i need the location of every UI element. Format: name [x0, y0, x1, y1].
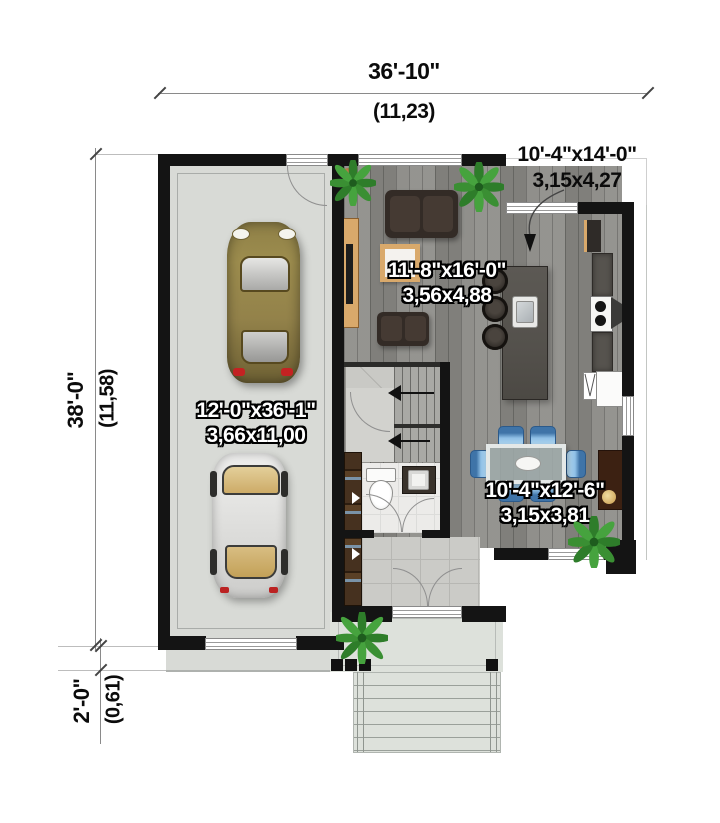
dim-top-imperial: 36'-10" — [254, 58, 554, 85]
car-wheel — [210, 471, 217, 497]
garage-front-door — [286, 154, 328, 166]
plant-icon — [330, 160, 376, 206]
front-steps — [353, 672, 501, 753]
extension-line — [95, 154, 158, 155]
car-taillight — [233, 368, 245, 376]
dining-chair — [566, 450, 586, 478]
stove-burner — [595, 315, 606, 326]
entry-threshold — [392, 606, 462, 618]
car-wheel — [210, 549, 217, 575]
car-rear-window — [241, 330, 289, 364]
bar-stool — [482, 324, 508, 350]
sofa-bottom-cushion — [381, 316, 402, 341]
car-taillight — [281, 368, 293, 376]
living-size-metric: 3,56x4,88 — [337, 283, 557, 308]
car-wheel — [281, 471, 288, 497]
sofa-bottom-cushion — [405, 316, 426, 341]
stove-burner — [595, 301, 606, 312]
car-headlight — [278, 228, 296, 240]
dining-side-window — [622, 396, 634, 436]
sofa-top-cushion — [390, 196, 420, 232]
dining-size-metric: 3,15x3,81 — [435, 503, 655, 528]
car-gold — [227, 222, 300, 383]
car-wheel — [281, 549, 288, 575]
wall-garage-bottom-left — [158, 636, 206, 650]
car-windshield — [240, 256, 290, 292]
porch-post — [486, 659, 498, 671]
step-rail — [496, 672, 497, 752]
dim-left-metric: (11,58) — [97, 339, 120, 459]
dining-size-imperial: 10'-4"x12'-6" — [435, 478, 655, 503]
step-rail — [363, 672, 364, 752]
wall-foyer-stub-right — [462, 606, 506, 622]
driveway — [166, 650, 336, 672]
garage-size-metric: 3,66x11,00 — [146, 423, 366, 448]
dim-left-imperial: 38'-0" — [63, 340, 89, 460]
plant-icon — [454, 162, 504, 212]
stair-rail — [344, 362, 446, 367]
understair-closet — [346, 364, 394, 388]
bifold-door-mark — [352, 492, 360, 504]
kitchen-counter — [592, 332, 613, 372]
plant-icon — [336, 612, 388, 664]
car-headlight — [232, 228, 250, 240]
kitchen-counter — [592, 253, 613, 297]
stair-landing-line — [394, 424, 440, 428]
dim-porch-imperial: 2'-0" — [69, 641, 95, 761]
sofa-top-cushion — [423, 196, 453, 232]
living-room-label: 11'-8"x16'-0" 3,56x4,88 — [337, 258, 557, 308]
step-rail — [357, 672, 358, 752]
serving-plate — [515, 456, 541, 471]
dim-top-metric: (11,23) — [254, 100, 554, 124]
floor-plan-canvas: 36'-10" (11,23) 38'-0" (11,58) 2'-0" (0,… — [0, 0, 720, 823]
fridge-door-swing — [583, 372, 597, 400]
stair-arrow-head — [388, 433, 401, 449]
garage-door — [205, 638, 297, 650]
entry-lockers — [344, 452, 362, 606]
garage-label: 12'-0"x36'-1" 3,66x11,00 — [146, 398, 366, 448]
dim-porch-line — [100, 638, 101, 744]
bifold-door-mark — [352, 548, 360, 560]
car-silver — [212, 453, 286, 598]
step-rail — [490, 672, 491, 752]
dim-top-line — [158, 93, 648, 94]
dining-room-label: 10'-4"x12'-6" 3,15x3,81 — [435, 478, 655, 528]
garage-size-imperial: 12'-0"x36'-1" — [146, 398, 366, 423]
dim-porch-metric: (0,61) — [103, 640, 126, 760]
pantry-cabinet — [584, 220, 601, 252]
car-windshield — [222, 465, 280, 495]
kitchen-label-arrow — [498, 186, 576, 264]
plant-icon — [568, 516, 620, 568]
fridge-icon — [596, 371, 624, 407]
car-rear-window — [225, 545, 277, 579]
wall-garage-living-divider — [332, 154, 344, 622]
car-taillight — [269, 587, 278, 593]
stair-arrow-tail — [400, 440, 430, 442]
stair-arrow-tail — [400, 392, 434, 394]
car-taillight — [220, 587, 229, 593]
vanity-sink-icon — [408, 470, 429, 490]
